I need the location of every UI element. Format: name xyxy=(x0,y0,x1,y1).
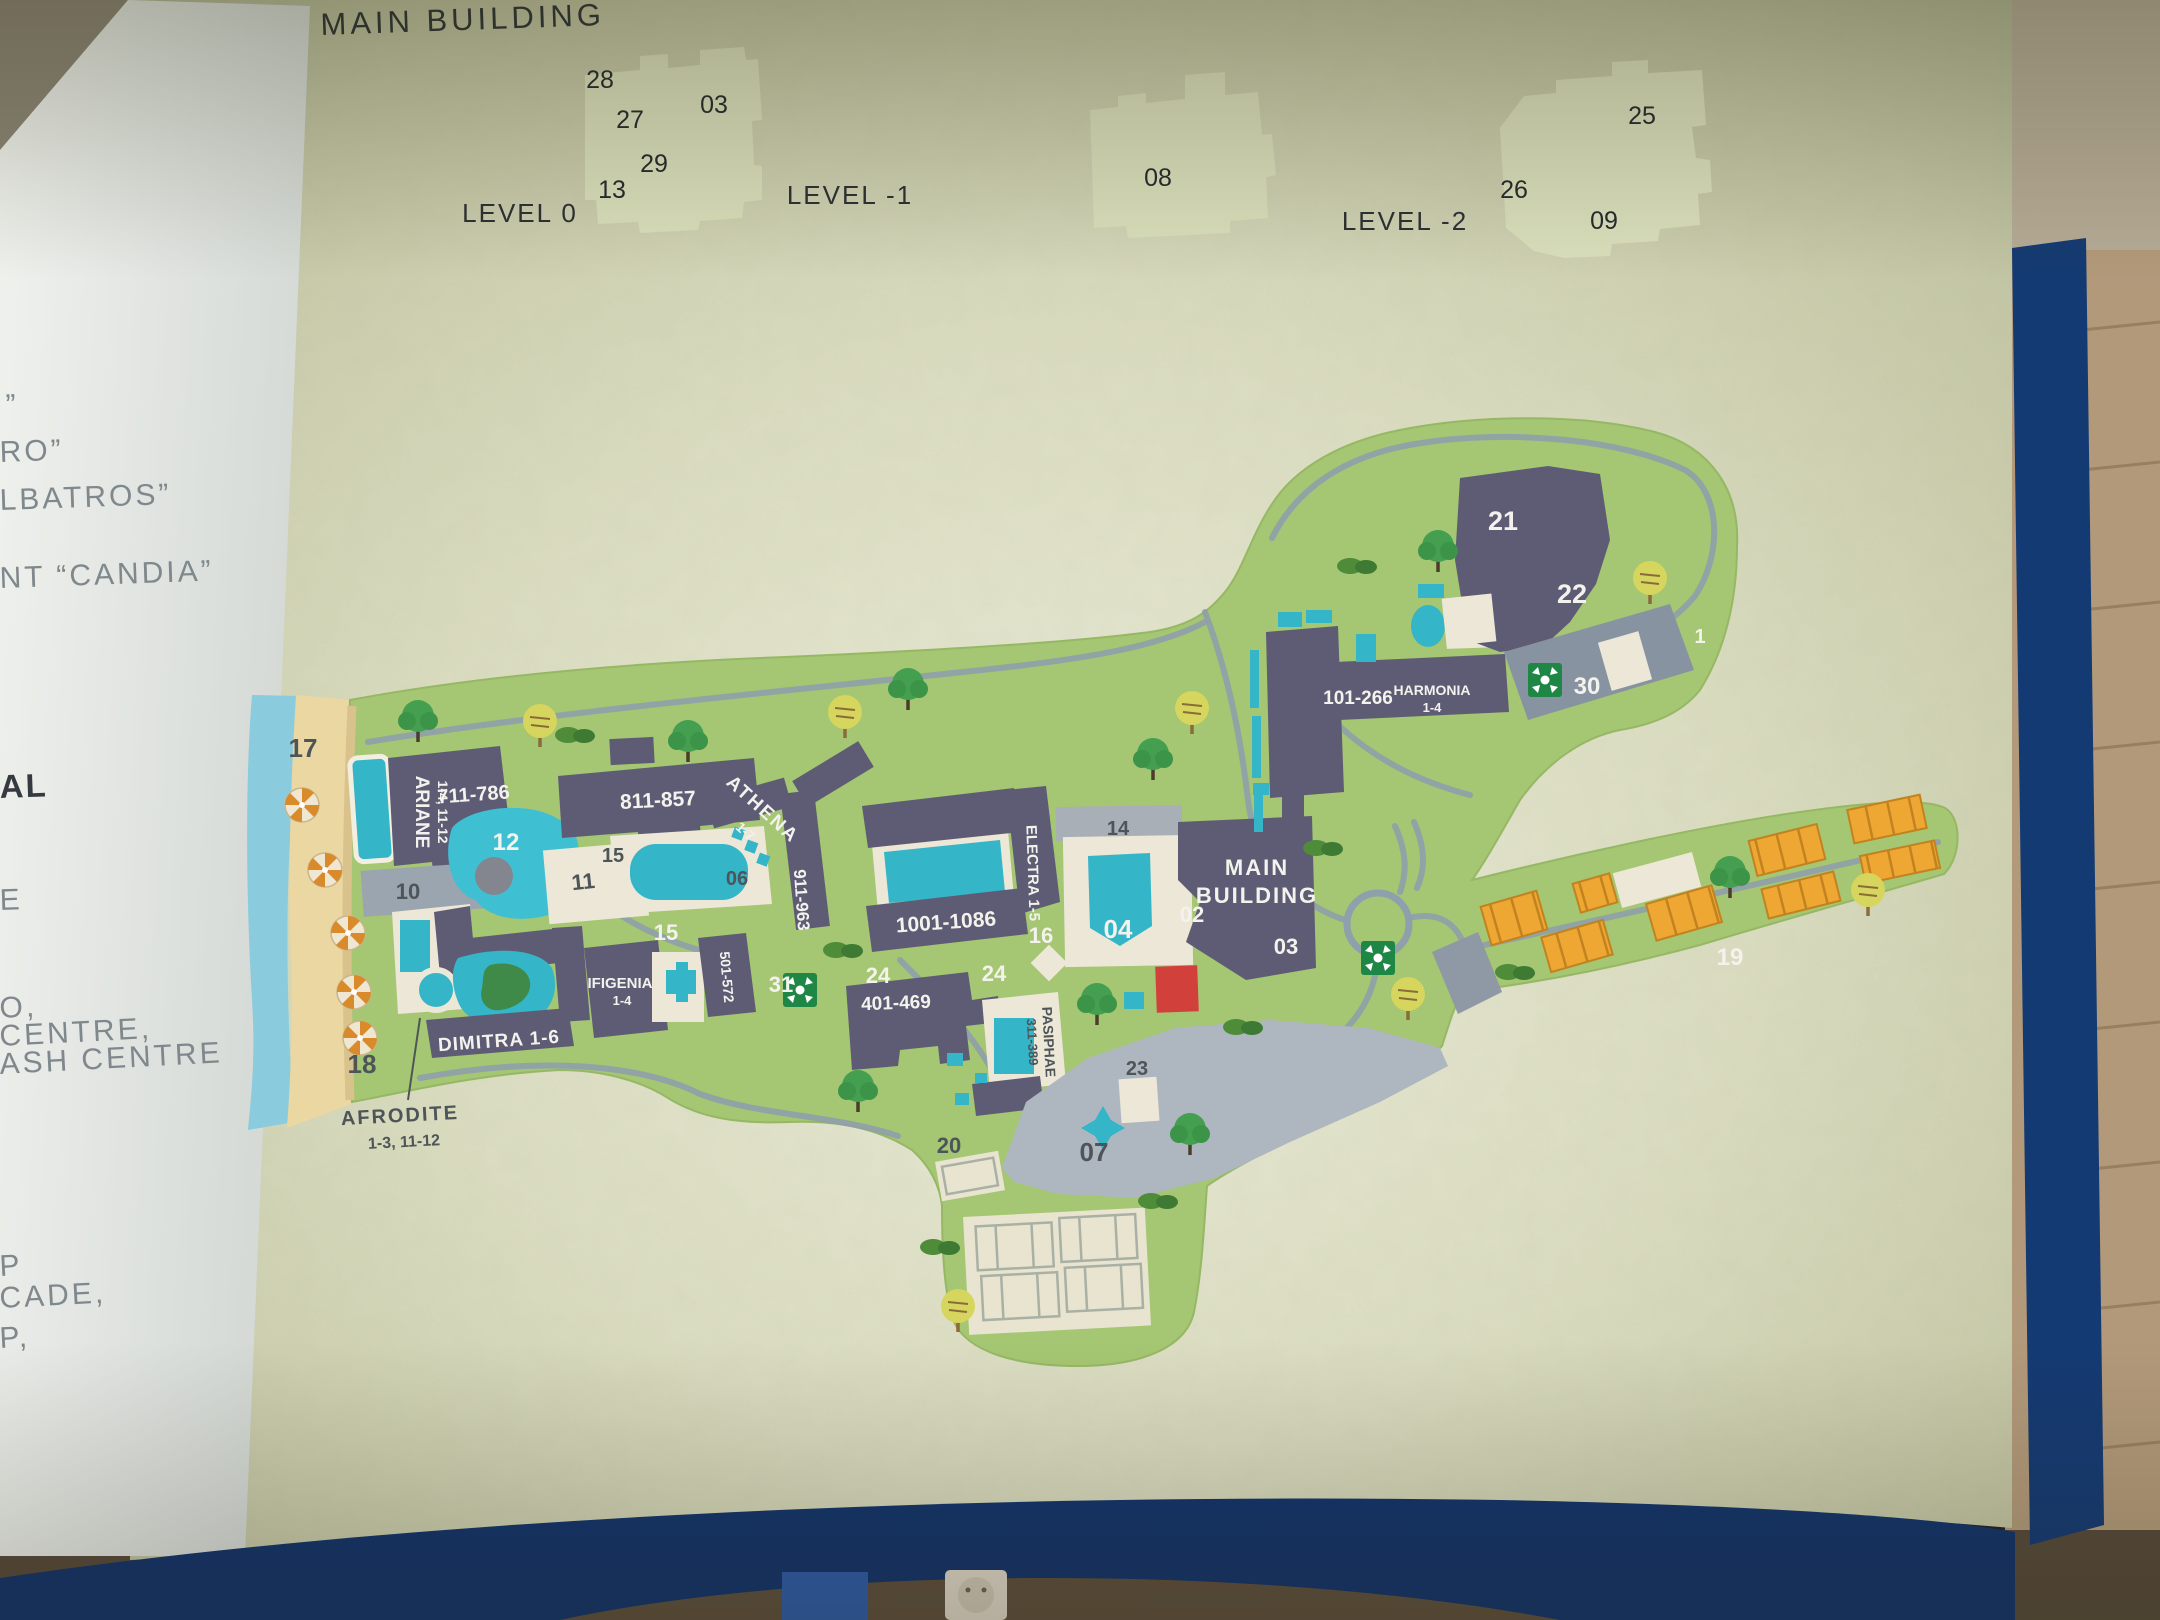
afrodite-pool xyxy=(400,920,430,972)
photo-of-resort-map-sign: ” RO” LBATROS” NT “CANDIA” AL E O, CENTR… xyxy=(0,0,2160,1620)
marker-31: 31 xyxy=(769,972,793,997)
legend-fragment: LBATROS” xyxy=(0,478,172,517)
legend-fragment: CADE, xyxy=(0,1276,107,1315)
label-electra: ELECTRA 1-5 xyxy=(1022,825,1042,922)
vignette-top xyxy=(0,0,2160,280)
marker-24b: 24 xyxy=(982,961,1007,986)
marker-17: 17 xyxy=(289,733,318,763)
marker-1: 1 xyxy=(1694,626,1705,648)
ariane-pool xyxy=(349,756,394,862)
beach-umbrella-icon xyxy=(308,853,342,887)
legend-fragment: E xyxy=(0,883,23,917)
small-pool xyxy=(1124,992,1144,1009)
ifigenia-pool2 xyxy=(676,962,688,1002)
marker-15b: 15 xyxy=(654,920,678,945)
beach-umbrella-icon xyxy=(331,916,365,950)
marker-12: 12 xyxy=(493,829,520,856)
marker-03: 03 xyxy=(1274,934,1298,959)
meeting-point-icon xyxy=(1361,941,1395,975)
marker-16: 16 xyxy=(1029,923,1053,948)
small-pool xyxy=(947,1053,963,1066)
afrodite-round-pool xyxy=(416,970,456,1010)
pool-island xyxy=(475,857,513,895)
beach-umbrella-icon xyxy=(285,788,319,822)
label-harmonia: HARMONIA xyxy=(1394,682,1471,698)
marker-24a: 24 xyxy=(866,963,891,988)
label-401-469: 401-469 xyxy=(861,992,931,1015)
label-811-857: 811-857 xyxy=(619,787,696,814)
white-building xyxy=(1442,594,1497,647)
marker-22: 22 xyxy=(1557,579,1587,609)
marker-14: 14 xyxy=(1107,818,1130,840)
small-pool xyxy=(1411,605,1445,647)
meeting-point-icon xyxy=(1528,663,1562,697)
lap-pool xyxy=(1250,650,1259,708)
building-811-stub xyxy=(609,737,654,765)
label-main-building-1: MAIN xyxy=(1225,855,1289,880)
small-pool xyxy=(1418,584,1444,598)
legend-fragment: AL xyxy=(0,766,48,805)
marker-20: 20 xyxy=(937,1133,961,1158)
building-23 xyxy=(1119,1077,1160,1124)
label-ariane: ARIANE xyxy=(411,776,432,849)
marker-19: 19 xyxy=(1717,944,1744,971)
legend-fragment: P xyxy=(0,1249,23,1283)
label-ifigenia: IFIGENIA xyxy=(587,975,652,992)
beach-umbrella-icon xyxy=(337,975,371,1009)
label-main-building-2: BUILDING xyxy=(1196,883,1318,908)
label-harmonia-units: 1-4 xyxy=(1423,700,1443,715)
small-pool xyxy=(975,1073,987,1083)
small-pool xyxy=(1356,634,1376,662)
marker-18: 18 xyxy=(348,1049,377,1079)
small-pool xyxy=(1278,612,1302,627)
building-harmonia xyxy=(1266,626,1344,798)
marker-11: 11 xyxy=(570,868,596,895)
marker-30: 30 xyxy=(1574,673,1601,700)
building-annex xyxy=(1468,566,1498,598)
label-ifigenia-units: 1-4 xyxy=(613,993,633,1008)
label-311-389: 311-389 xyxy=(1024,1018,1041,1066)
marker-15a: 15 xyxy=(602,845,624,867)
small-pool xyxy=(955,1093,969,1105)
tennis-courts xyxy=(963,1208,1151,1335)
marker-07: 07 xyxy=(1080,1137,1109,1167)
red-building xyxy=(1155,965,1199,1012)
marker-23: 23 xyxy=(1126,1058,1148,1080)
marker-06: 06 xyxy=(726,868,748,890)
small-pool xyxy=(1306,610,1332,623)
marker-04: 04 xyxy=(1104,914,1133,944)
legend-fragment: RO” xyxy=(0,434,64,469)
marker-21: 21 xyxy=(1488,506,1518,536)
vignette-bottom xyxy=(0,1340,2160,1620)
label-101-266: 101-266 xyxy=(1323,688,1393,709)
legend-fragment: ” xyxy=(5,389,19,422)
lap-pool xyxy=(1254,784,1263,832)
marker-02: 02 xyxy=(1180,902,1204,927)
lap-pool xyxy=(1252,716,1261,778)
marker-10: 10 xyxy=(396,879,420,904)
